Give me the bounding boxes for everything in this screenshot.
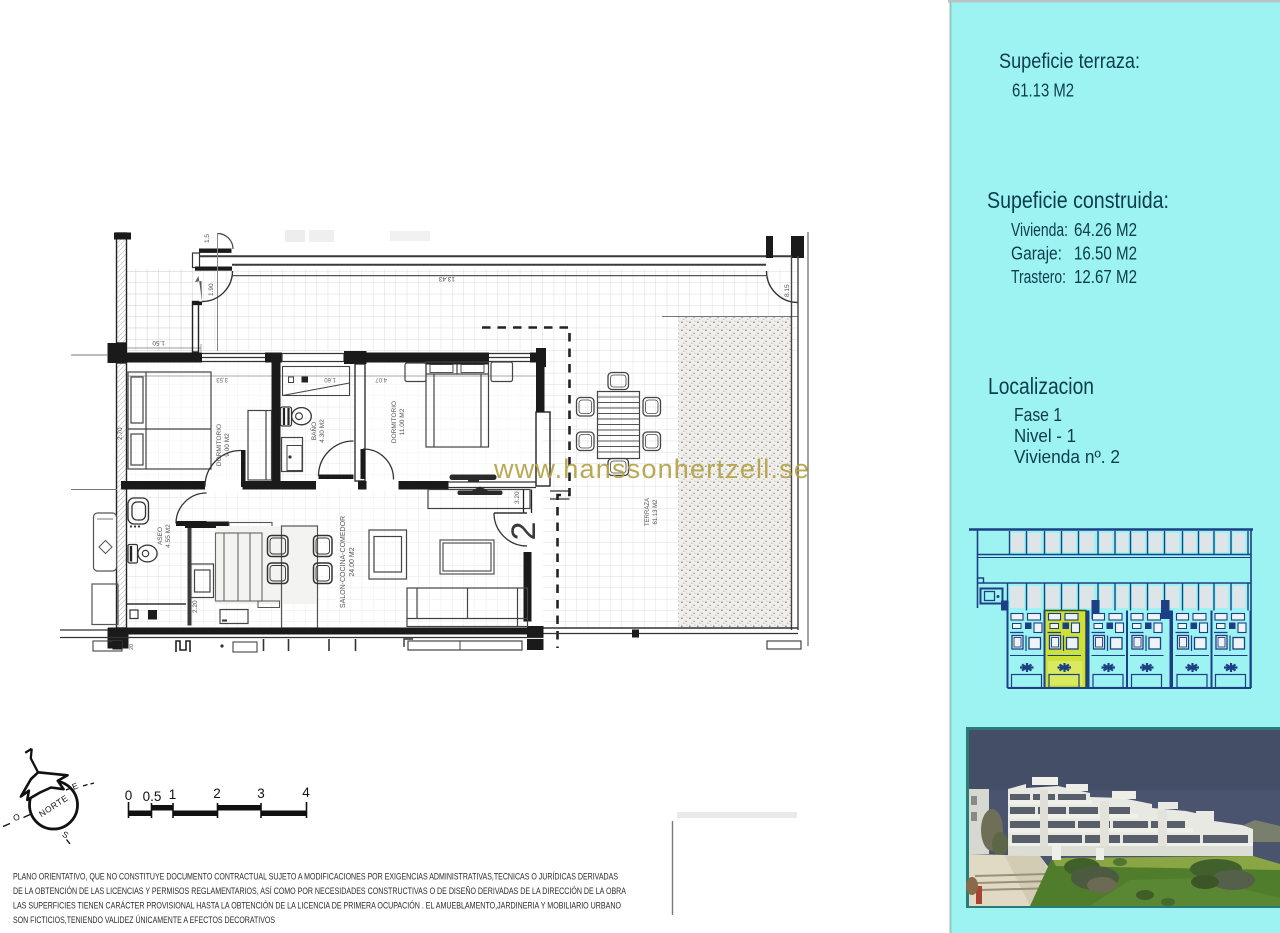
svg-text:Localizacion: Localizacion	[988, 373, 1094, 399]
svg-text:PLANO ORIENTATIVO, QUE NO CONS: PLANO ORIENTATIVO, QUE NO CONSTITUYE DOC…	[13, 872, 618, 883]
svg-text:1.5: 1.5	[204, 234, 211, 243]
svg-text:3.53: 3.53	[216, 376, 228, 382]
svg-text:Supeficie construida:: Supeficie construida:	[987, 187, 1169, 213]
svg-text:20: 20	[129, 644, 135, 650]
svg-text:Supeficie terraza:: Supeficie terraza:	[999, 50, 1140, 73]
svg-text:64.26 M2: 64.26 M2	[1074, 220, 1137, 240]
svg-text:SON FICTICIOS,TENIENDO VALIDEZ: SON FICTICIOS,TENIENDO VALIDEZ ÚNICAMENT…	[13, 915, 275, 926]
svg-text:3: 3	[257, 786, 265, 801]
svg-text:2: 2	[505, 522, 543, 541]
svg-text:Vivienda nº. 2: Vivienda nº. 2	[1014, 447, 1120, 467]
svg-text:2.70: 2.70	[117, 427, 124, 440]
svg-text:LAS SUPERFICIES TIENEN CARÁCTE: LAS SUPERFICIES TIENEN CARÁCTER PROVISIO…	[13, 901, 621, 912]
svg-text:Trastero:: Trastero:	[1011, 267, 1066, 287]
svg-text:1.90: 1.90	[208, 283, 215, 296]
svg-text:1.60: 1.60	[324, 376, 336, 382]
svg-text:2.20: 2.20	[192, 600, 199, 613]
svg-text:0: 0	[125, 788, 133, 803]
svg-text:1.50: 1.50	[152, 339, 165, 346]
svg-text:0.5: 0.5	[143, 789, 162, 804]
svg-text:Garaje:: Garaje:	[1011, 244, 1062, 264]
svg-text:Fase 1: Fase 1	[1014, 405, 1062, 425]
svg-text:BAÑO4.30 M2: BAÑO4.30 M2	[309, 419, 326, 443]
svg-text:1: 1	[169, 787, 177, 802]
svg-text:16.50 M2: 16.50 M2	[1074, 244, 1137, 264]
svg-text:Nivel - 1: Nivel - 1	[1014, 426, 1076, 446]
svg-text:13.43: 13.43	[438, 275, 455, 282]
svg-text:www.hanssonhertzell.se: www.hanssonhertzell.se	[493, 454, 810, 484]
svg-text:8.15: 8.15	[784, 284, 791, 297]
svg-text:3.20: 3.20	[514, 491, 521, 504]
svg-text:61.13 M2: 61.13 M2	[1012, 80, 1074, 101]
svg-text:DE LA OBTENCIÓN DE LAS LICENCI: DE LA OBTENCIÓN DE LAS LICENCIAS Y PERMI…	[13, 886, 626, 897]
svg-text:12.67 M2: 12.67 M2	[1074, 267, 1137, 287]
svg-text:4.07: 4.07	[375, 376, 387, 382]
svg-text:ASEO4.55 M2: ASEO4.55 M2	[157, 524, 172, 548]
svg-text:2: 2	[213, 786, 221, 801]
svg-text:4: 4	[302, 785, 310, 800]
svg-text:Vivienda:: Vivienda:	[1011, 220, 1068, 240]
